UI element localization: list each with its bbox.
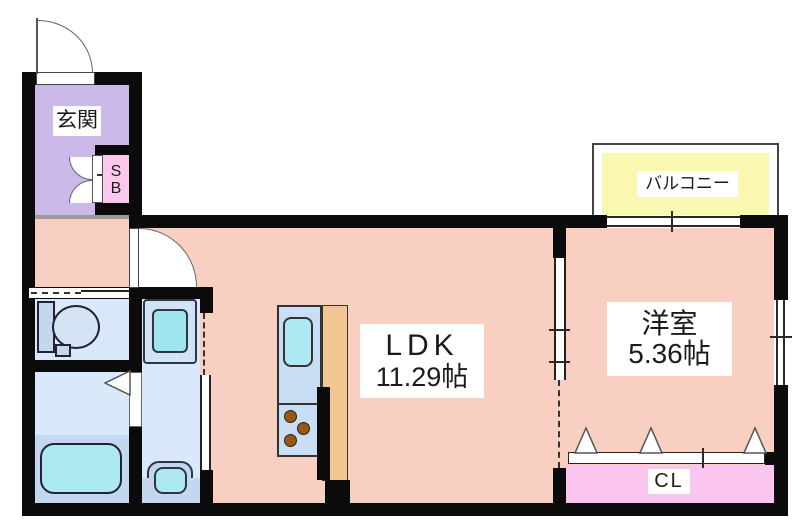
washbasin-bowl xyxy=(154,467,187,494)
toilet-sliding-door-track xyxy=(31,292,81,294)
closet-label-text: CL xyxy=(654,471,684,493)
balcony-window-line xyxy=(607,225,740,227)
balcony-label: バルコニー xyxy=(637,171,738,197)
right-window-line xyxy=(776,300,778,385)
balcony-outline-top xyxy=(592,143,779,145)
bathtub xyxy=(40,443,122,494)
balcony-outline-right xyxy=(777,143,779,215)
washing-machine-pan-inner xyxy=(152,309,188,353)
balcony-window-tick xyxy=(671,211,673,232)
shoe-box-label-line2: B xyxy=(111,180,122,197)
washroom-sliding-door-track xyxy=(203,313,205,375)
wall-washroom-east-upper xyxy=(200,287,213,313)
wall-right-outer-upper xyxy=(774,215,788,300)
shoe-box-door xyxy=(92,155,103,203)
entrance-door-opening xyxy=(36,72,95,85)
closet-label: CL xyxy=(648,469,690,494)
washroom-sliding-door-panel xyxy=(200,375,211,470)
wall-kitchen-stub xyxy=(325,480,350,503)
stove-burner xyxy=(297,422,310,435)
floor-plan: 玄関 S B LDK 11.29帖 洋室 5.36帖 バルコニー CL xyxy=(0,0,800,530)
western-room-label: 洋室 5.36帖 xyxy=(607,302,732,376)
ldk-label: LDK 11.29帖 xyxy=(360,324,484,398)
stove-burner xyxy=(284,434,297,447)
entrance-door-arc xyxy=(38,20,93,73)
ldk-western-door-tick xyxy=(549,329,570,331)
wall-bottom-outer xyxy=(22,503,788,516)
wall-ldk-western-lower xyxy=(553,468,566,516)
ldk-western-sliding-door-track xyxy=(558,380,560,468)
wall-entrance-right xyxy=(129,72,142,215)
right-window-line xyxy=(783,300,785,385)
entrance-label: 玄関 xyxy=(53,106,101,136)
hallway-floor xyxy=(35,218,129,287)
ldk-size-text: 11.29帖 xyxy=(376,363,469,392)
toilet-control xyxy=(55,344,71,357)
balcony-outline-left xyxy=(592,143,594,215)
wall-top-right-of-window xyxy=(740,215,774,228)
western-room-label-text: 洋室 xyxy=(641,309,697,339)
kitchen-counter-divider xyxy=(277,403,322,405)
wall-kitchen xyxy=(317,387,330,480)
wall-right-outer-lower xyxy=(774,385,788,516)
entrance-label-text: 玄関 xyxy=(56,110,98,133)
closet-folding-door-triangles xyxy=(566,426,776,454)
right-window-tick xyxy=(770,336,792,338)
ldk-label-text: LDK xyxy=(385,330,458,362)
entrance-door-leaf xyxy=(36,18,38,74)
toilet-sliding-door-panel xyxy=(81,290,129,292)
stove-burner xyxy=(284,410,297,423)
shoe-box-door-knob xyxy=(97,174,102,176)
ldk-hall-door-leaf xyxy=(129,228,139,288)
shoe-box-label: S B xyxy=(103,157,129,203)
wall-toilet-washroom xyxy=(129,299,142,363)
entrance-step-threshold xyxy=(35,215,129,219)
wall-ldk-western-upper xyxy=(553,228,566,258)
wall-top-main xyxy=(129,215,607,228)
western-room-size-text: 5.36帖 xyxy=(628,339,711,369)
balcony-label-text: バルコニー xyxy=(645,175,730,193)
toilet-bowl xyxy=(52,305,100,349)
wall-bathroom-washroom xyxy=(129,427,142,503)
bathroom-folding-door-triangle xyxy=(103,370,131,396)
shoe-box-label-line1: S xyxy=(111,163,122,180)
wall-shoebox-bottom xyxy=(95,203,142,215)
wall-washroom-east-lower xyxy=(200,470,213,503)
balcony-window-line xyxy=(607,216,740,218)
kitchen-sink xyxy=(283,317,313,367)
ldk-western-door-tick xyxy=(549,361,570,363)
